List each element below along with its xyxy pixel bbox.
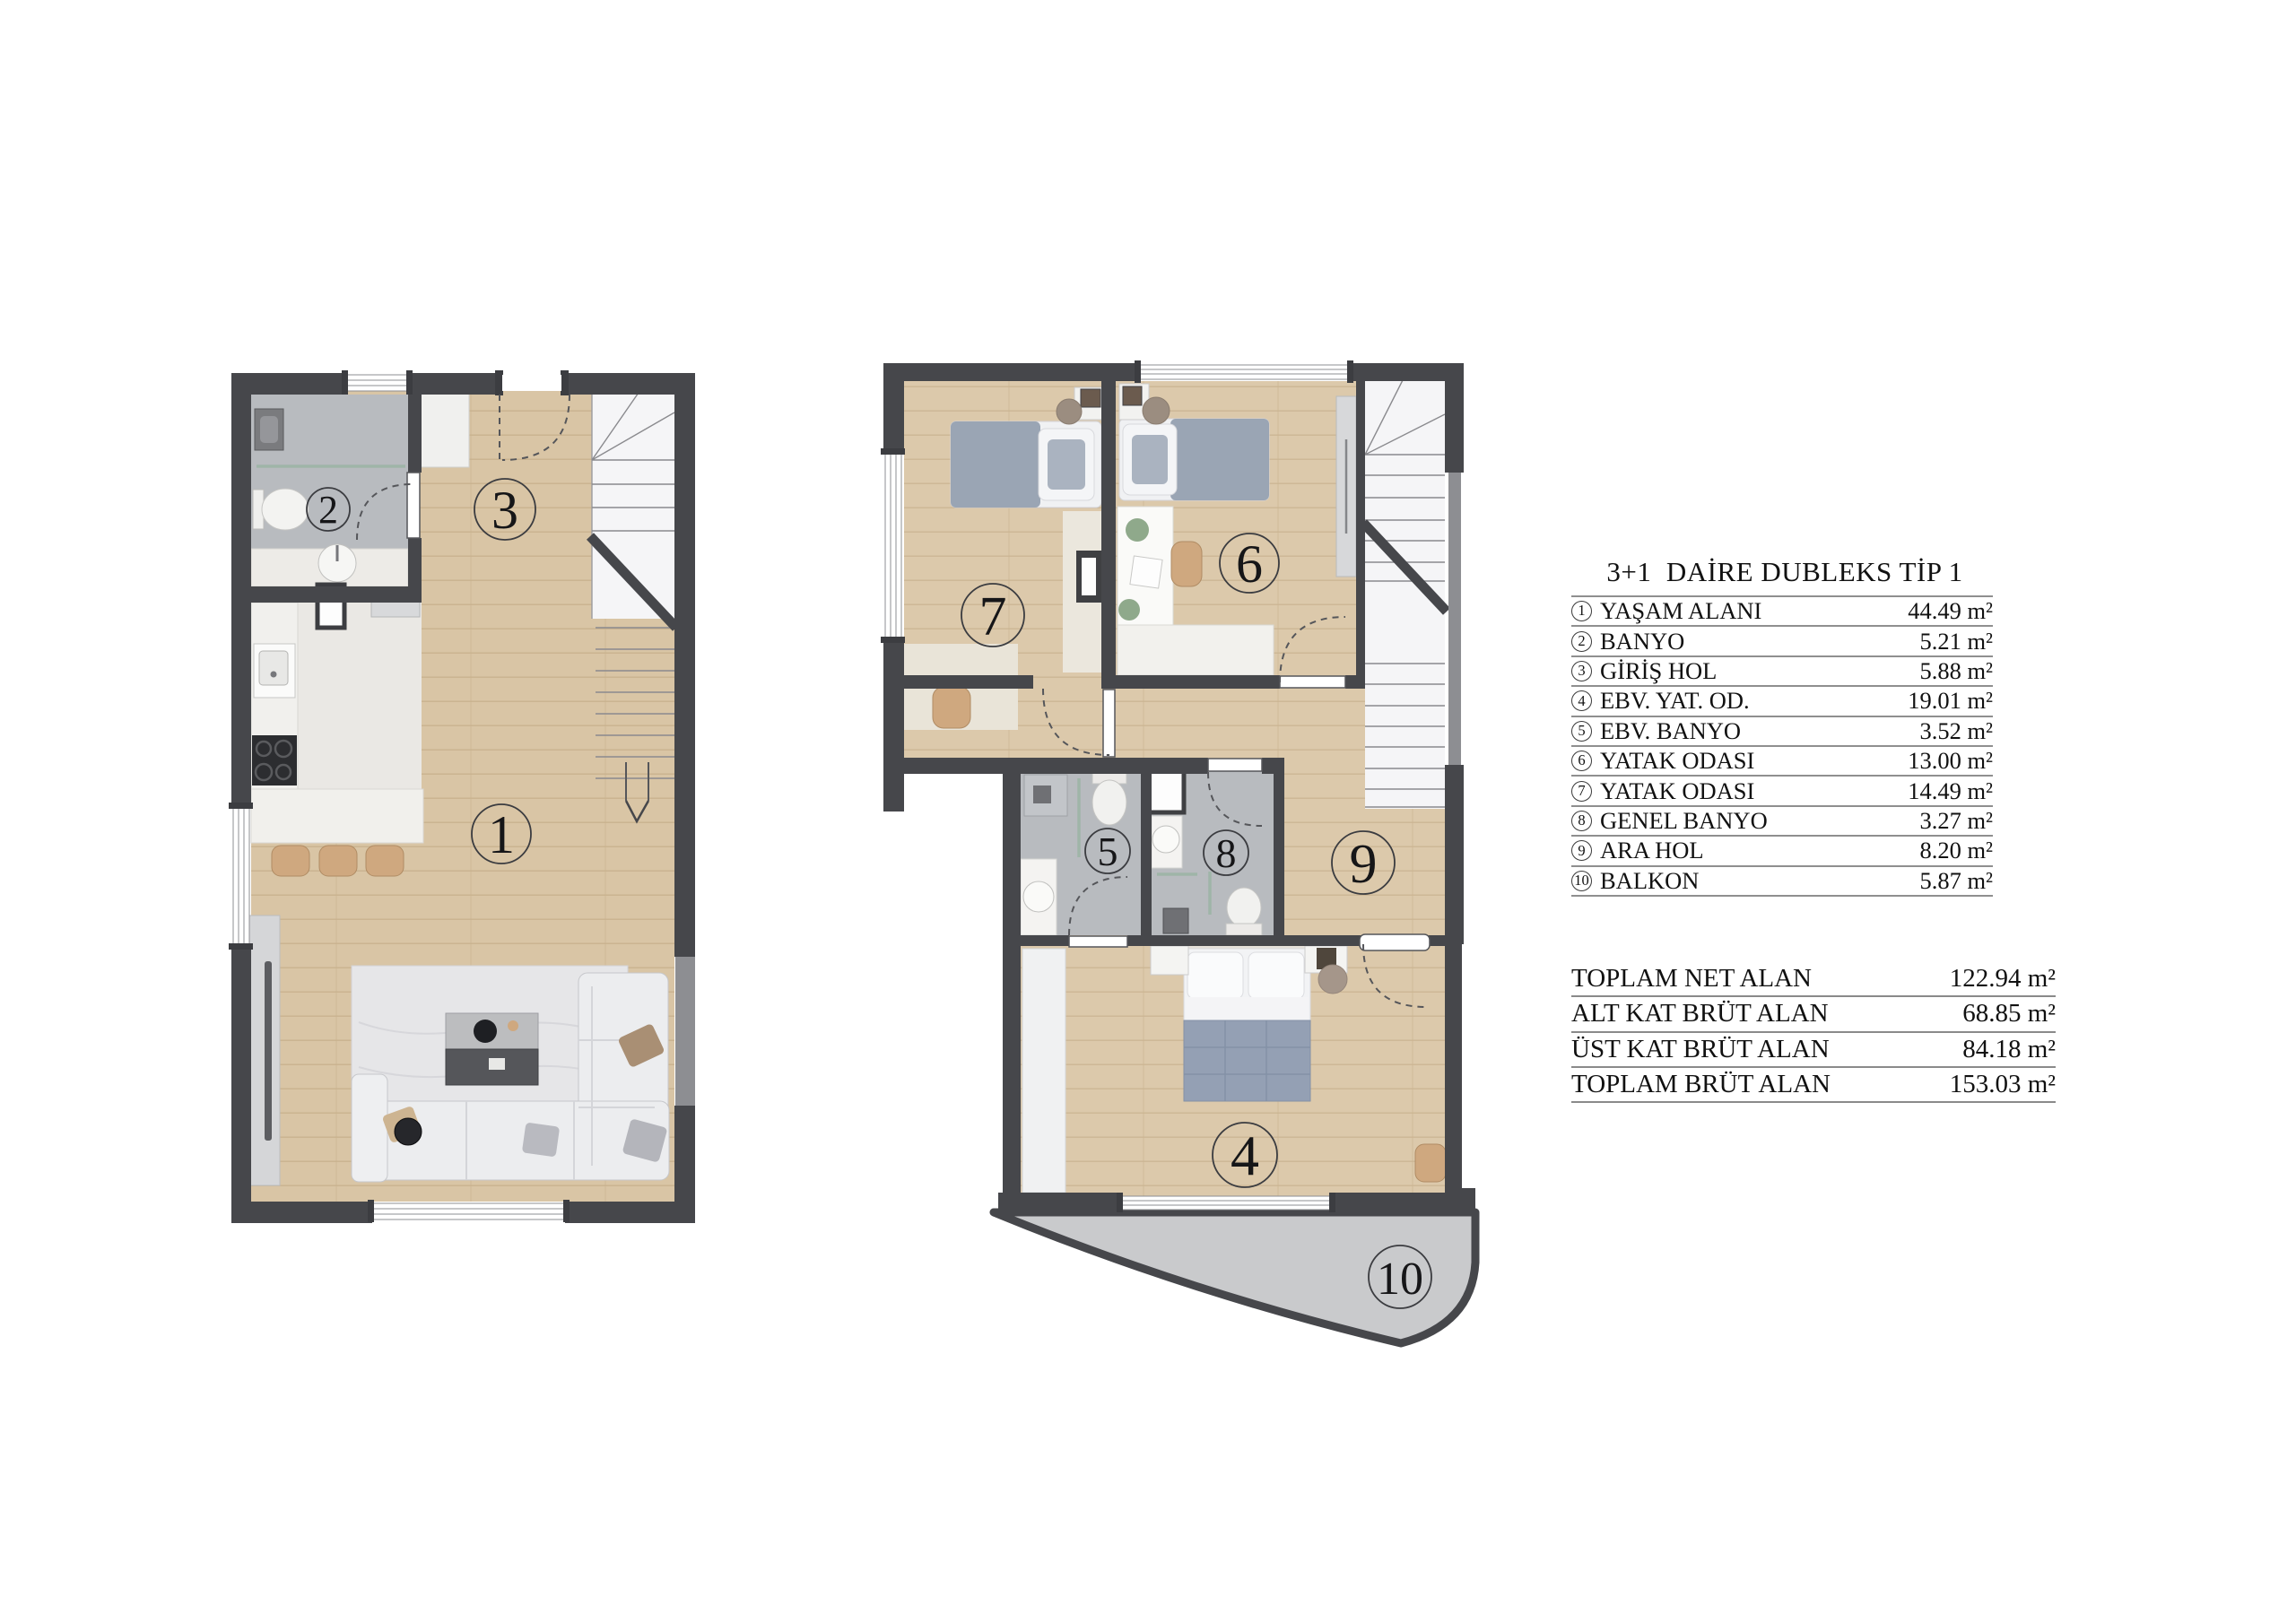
legend-number-circle: 9 [1571, 840, 1592, 861]
nightstand-6-decor [1123, 386, 1142, 405]
closet-4 [1022, 949, 1065, 1193]
legend-room-area: 3.52 m² [1919, 717, 1993, 745]
legend-number-circle: 8 [1571, 811, 1592, 831]
round-rug-4 [1318, 965, 1347, 994]
legend-row: 1 YAŞAM ALANI 44.49 m² [1571, 597, 1993, 627]
room-label-1: 1 [488, 805, 515, 864]
total-row: TOPLAM BRÜT ALAN 153.03 m² [1571, 1068, 2056, 1103]
total-value: 153.03 m² [1950, 1070, 2056, 1099]
legend-number-circle: 4 [1571, 690, 1592, 711]
legend-room-area: 8.20 m² [1919, 837, 1993, 864]
legend-room-area: 5.87 m² [1919, 867, 1993, 895]
toilet-8-tank [1226, 924, 1262, 935]
legend-number-circle: 7 [1571, 781, 1592, 802]
sofa-chaise [352, 1074, 387, 1182]
bar-stool-2 [319, 846, 357, 876]
legend-row: 10 BALKON 5.87 m² [1571, 867, 1993, 897]
legend-row: 3 GİRİŞ HOL 5.88 m² [1571, 657, 1993, 687]
total-value: 68.85 m² [1962, 999, 2056, 1028]
toilet [262, 489, 309, 530]
bath5-door [1069, 936, 1127, 947]
bath8-door [1208, 759, 1262, 771]
washer-drum [260, 416, 278, 443]
legend-room-area: 44.49 m² [1908, 597, 1993, 625]
legend-room-label: GENEL BANYO [1600, 807, 1768, 835]
total-row: ÜST KAT BRÜT ALAN 84.18 m² [1571, 1033, 2056, 1068]
legend-row: 8 GENEL BANYO 3.27 m² [1571, 807, 1993, 837]
hall-cabinet [419, 390, 469, 467]
legend-room-label: BANYO [1600, 628, 1684, 655]
niche [1082, 558, 1096, 595]
legend-room-label: BALKON [1600, 867, 1699, 895]
bed-7-pillow-inner [1048, 439, 1085, 490]
legend-room-area: 14.49 m² [1908, 777, 1993, 805]
room4-door [1360, 934, 1430, 950]
kitchen-island [251, 789, 423, 843]
bed-4-pillow-r [1248, 952, 1304, 999]
legend-room-area: 5.21 m² [1919, 628, 1993, 655]
total-label: TOPLAM NET ALAN [1571, 964, 1812, 994]
desk-plant-2 [1118, 599, 1140, 621]
lower-floor-plan: 2 3 1 [229, 363, 700, 1228]
bed-6-pillow-inner [1132, 435, 1168, 484]
legend-row: 5 EBV. BANYO 3.52 m² [1571, 717, 1993, 747]
upper-floor-plan: 7 6 5 8 9 4 10 [879, 357, 1480, 1352]
right-wall-pillar [675, 957, 695, 1106]
total-label: TOPLAM BRÜT ALAN [1571, 1070, 1831, 1099]
armchair-7 [933, 687, 970, 728]
legend-number-circle: 6 [1571, 751, 1592, 771]
table-tray [474, 1020, 497, 1043]
total-row: ALT KAT BRÜT ALAN 68.85 m² [1571, 997, 2056, 1032]
totals-table: TOPLAM NET ALAN 122.94 m² ALT KAT BRÜT A… [1571, 962, 2056, 1103]
legend-room-label: EBV. BANYO [1600, 717, 1741, 745]
bed-6-duvet [1170, 419, 1269, 500]
toilet-5 [1092, 780, 1126, 825]
legend-row: 9 ARA HOL 8.20 m² [1571, 837, 1993, 866]
room-legend-table: 1 YAŞAM ALANI 44.49 m² 2 BANYO 5.21 m² 3… [1571, 595, 1993, 897]
bar-stool-3 [366, 846, 404, 876]
bench-4 [1415, 1144, 1446, 1182]
nightstand-7-decor [1081, 389, 1100, 407]
desk-plant-1 [1126, 518, 1149, 542]
legend-row: 6 YATAK ODASI 13.00 m² [1571, 747, 1993, 777]
room-label-7: 7 [979, 586, 1007, 647]
legend-number-circle: 10 [1571, 871, 1592, 891]
tv-unit [247, 916, 280, 1185]
round-tray [395, 1118, 422, 1145]
total-label: ALT KAT BRÜT ALAN [1571, 999, 1829, 1028]
toilet-8 [1227, 888, 1261, 927]
bed-7-duvet [951, 421, 1040, 508]
room7-door [1103, 690, 1115, 757]
tv [265, 961, 272, 1141]
room-label-3: 3 [491, 481, 518, 540]
kitchen-faucet [271, 672, 277, 678]
legend-row: 4 EBV. YAT. OD. 19.01 m² [1571, 687, 1993, 716]
legend-number-circle: 2 [1571, 631, 1592, 652]
legend-room-label: EBV. YAT. OD. [1600, 687, 1750, 715]
sink-8 [1152, 826, 1179, 853]
round-rug-7 [1057, 399, 1082, 424]
shaft [1148, 768, 1184, 812]
room-label-10: 10 [1377, 1254, 1423, 1305]
legend-room-label: ARA HOL [1600, 837, 1704, 864]
total-value: 122.94 m² [1950, 964, 2056, 994]
room6-door [1280, 676, 1345, 688]
bar-stool-1 [272, 846, 309, 876]
table-bowl [508, 1020, 518, 1031]
sink-5 [1023, 881, 1054, 912]
bed-4-duvet [1184, 1020, 1310, 1101]
round-rug-6 [1143, 397, 1170, 424]
legend-number-circle: 3 [1571, 661, 1592, 681]
legend-number-circle: 1 [1571, 601, 1592, 621]
total-value: 84.18 m² [1962, 1035, 2056, 1064]
washer-8 [1163, 908, 1188, 933]
laptop [1130, 556, 1162, 588]
legend-room-area: 5.88 m² [1919, 657, 1993, 685]
nightstand-4l [1151, 946, 1188, 975]
legend-row: 7 YATAK ODASI 14.49 m² [1571, 777, 1993, 806]
desk-horizontal [1118, 625, 1274, 675]
bathroom-2-door [407, 473, 420, 538]
upper-wall-pillar [1448, 473, 1461, 765]
legend-room-area: 13.00 m² [1908, 747, 1993, 775]
desk-chair [1171, 542, 1202, 586]
legend-room-label: YATAK ODASI [1600, 747, 1754, 775]
legend-number-circle: 5 [1571, 721, 1592, 742]
room-label-2: 2 [318, 488, 338, 532]
legend-room-label: YAŞAM ALANI [1600, 597, 1761, 625]
kitchen-sink [259, 651, 288, 685]
room-label-4: 4 [1231, 1124, 1259, 1187]
total-label: ÜST KAT BRÜT ALAN [1571, 1035, 1830, 1064]
bed-4-pillow-l [1187, 952, 1243, 999]
legend-room-area: 19.01 m² [1908, 687, 1993, 715]
table-book [489, 1058, 505, 1070]
room-label-6: 6 [1236, 534, 1263, 594]
legend-room-area: 3.27 m² [1919, 807, 1993, 835]
legend-room-label: YATAK ODASI [1600, 777, 1754, 805]
room-label-5: 5 [1098, 829, 1118, 874]
pillow-gray [522, 1123, 560, 1158]
legend-row: 2 BANYO 5.21 m² [1571, 627, 1993, 656]
room-label-8: 8 [1216, 830, 1237, 876]
room-label-9: 9 [1350, 834, 1378, 895]
legend-room-label: GİRİŞ HOL [1600, 657, 1717, 685]
plan-title: 3+1 DAİRE DUBLEKS TİP 1 [1574, 556, 1996, 588]
shower-head-5 [1033, 785, 1051, 803]
total-row: TOPLAM NET ALAN 122.94 m² [1571, 962, 2056, 997]
